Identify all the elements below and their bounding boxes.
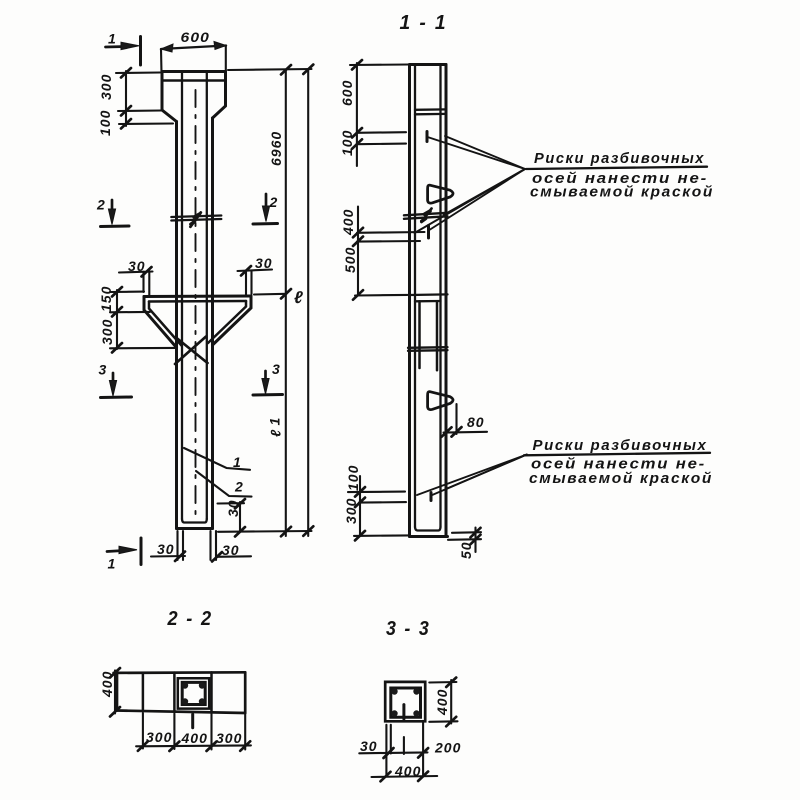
svg-text:2: 2 bbox=[269, 194, 279, 210]
svg-text:смываемой краской: смываемой краской bbox=[529, 470, 713, 487]
svg-text:1: 1 bbox=[267, 417, 283, 426]
svg-text:Риски разбивочных: Риски разбивочных bbox=[533, 437, 708, 454]
svg-text:150: 150 bbox=[98, 286, 114, 312]
svg-text:600: 600 bbox=[339, 80, 355, 106]
svg-text:2 - 2: 2 - 2 bbox=[167, 608, 213, 630]
svg-text:30: 30 bbox=[360, 738, 378, 754]
svg-text:ℓ: ℓ bbox=[268, 429, 284, 437]
svg-text:ℓ: ℓ bbox=[294, 288, 303, 307]
svg-text:3 - 3: 3 - 3 bbox=[386, 618, 431, 640]
svg-text:1 - 1: 1 - 1 bbox=[400, 12, 448, 34]
svg-text:30: 30 bbox=[157, 541, 175, 557]
svg-text:3: 3 bbox=[272, 361, 281, 377]
svg-text:300: 300 bbox=[99, 319, 115, 345]
svg-text:30: 30 bbox=[225, 499, 241, 517]
svg-text:200: 200 bbox=[434, 740, 461, 756]
svg-text:80: 80 bbox=[467, 414, 485, 430]
svg-text:1: 1 bbox=[108, 556, 117, 572]
svg-text:300: 300 bbox=[216, 730, 242, 746]
svg-text:100: 100 bbox=[345, 465, 361, 491]
svg-text:400: 400 bbox=[434, 689, 450, 716]
svg-text:1: 1 bbox=[108, 31, 117, 47]
svg-text:300: 300 bbox=[146, 729, 172, 745]
svg-text:2: 2 bbox=[234, 479, 244, 495]
svg-text:100: 100 bbox=[97, 110, 113, 136]
svg-text:6960: 6960 bbox=[268, 131, 284, 166]
svg-text:600: 600 bbox=[181, 29, 211, 45]
svg-text:2: 2 bbox=[96, 197, 106, 213]
svg-text:3: 3 bbox=[99, 362, 108, 378]
svg-text:смываемой краской: смываемой краской bbox=[530, 184, 714, 201]
svg-text:500: 500 bbox=[342, 247, 358, 273]
svg-text:300: 300 bbox=[98, 74, 114, 100]
svg-text:400: 400 bbox=[340, 209, 356, 236]
svg-text:400: 400 bbox=[181, 730, 208, 746]
svg-text:Риски разбивочных: Риски разбивочных bbox=[534, 150, 705, 167]
svg-text:100: 100 bbox=[339, 130, 355, 156]
svg-text:300: 300 bbox=[343, 498, 359, 524]
svg-text:1: 1 bbox=[233, 454, 242, 470]
